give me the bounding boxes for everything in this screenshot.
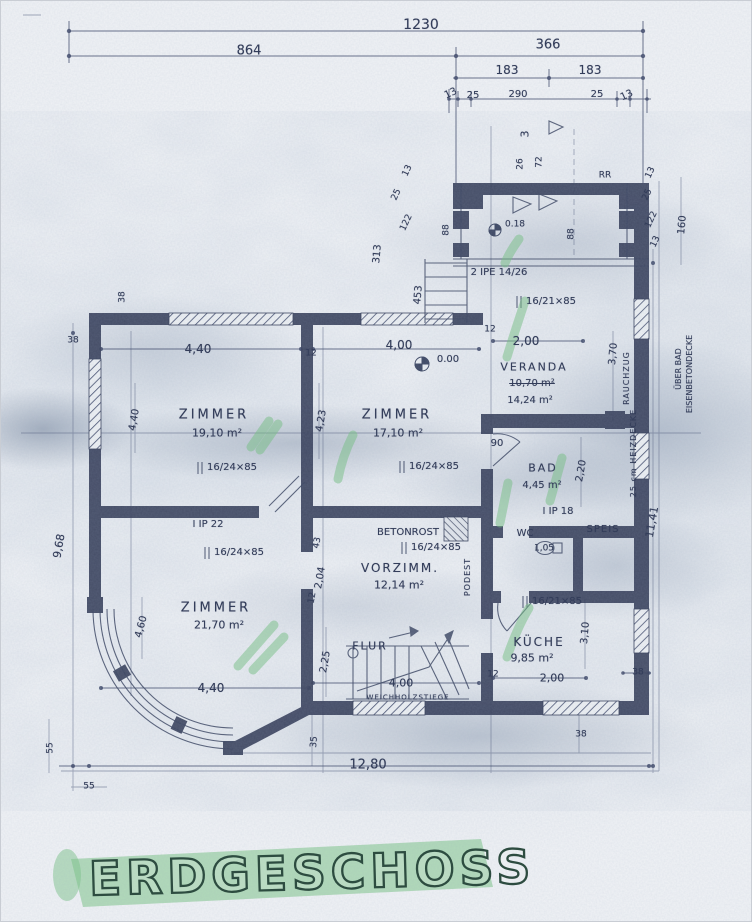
- dim-122-left: 122: [399, 213, 414, 232]
- window-zimmer-3: 16/24×85: [214, 548, 264, 558]
- note-rauchzug: RAUCHZUG: [623, 351, 631, 405]
- dim-90: 90: [491, 439, 504, 449]
- room-veranda: VERANDA: [500, 362, 567, 373]
- dim-968: 9,68: [51, 533, 66, 559]
- area-zimmer-3: 21,70 m²: [194, 620, 244, 631]
- note-rr: RR: [599, 172, 612, 181]
- dim-460: 4,60: [134, 615, 149, 639]
- room-zimmer-2: ZIMMER: [362, 409, 432, 422]
- dim-122-right: 122: [644, 210, 659, 229]
- area-zimmer-2: 17,10 m²: [373, 428, 423, 439]
- dim-25-porch-right: 25: [642, 188, 655, 202]
- room-kueche: KÜCHE: [513, 636, 564, 648]
- dim-88-right: 88: [568, 228, 577, 239]
- dim-200-kueche: 2,00: [540, 673, 565, 684]
- dim-35: 35: [310, 736, 320, 748]
- dim-12-mid: 12: [305, 350, 316, 359]
- note-betonrost: BETONROST: [377, 528, 439, 538]
- dim-55-vertical: 55: [47, 742, 56, 753]
- area-vorzimmer: 12,14 m²: [374, 580, 424, 591]
- window-vorzimmer: 16/24×85: [411, 543, 461, 553]
- window-zimmer-2: 16/24×85: [409, 462, 459, 472]
- note-ueber-bad: ÜBER BAD: [675, 348, 683, 390]
- window-kueche: 16/21×85: [532, 597, 582, 607]
- note-heizdecke: 25 cm HEIZDECKE: [630, 409, 638, 497]
- room-speis: SPEIS: [587, 525, 620, 535]
- dim-1280: 12,80: [349, 759, 386, 772]
- dim-12-flur: 12: [487, 671, 498, 680]
- note-stairs: WEICHHOLZSTIEGE: [366, 695, 449, 702]
- dim-38-bottom: 38: [575, 731, 586, 740]
- dim-72: 72: [536, 156, 545, 167]
- dim-453: 453: [413, 285, 425, 305]
- dim-43: 43: [313, 537, 324, 550]
- dim-313: 313: [372, 244, 384, 264]
- dim-38-top: 38: [119, 291, 128, 302]
- dim-440-left: 4,40: [128, 408, 142, 432]
- room-wc: WC: [517, 529, 534, 539]
- dim-13-porch-right: 13: [645, 166, 658, 180]
- dim-290: 290: [508, 90, 527, 100]
- dim-25-a: 25: [467, 91, 480, 101]
- dim-38-left: 38: [67, 337, 78, 346]
- dim-88-left: 88: [443, 224, 452, 235]
- dim-204: 2,04: [314, 566, 328, 590]
- dim-3: 3: [520, 131, 531, 138]
- dim-183-left: 183: [496, 64, 519, 76]
- area-kueche: 9,85 m²: [510, 653, 553, 664]
- dim-160: 160: [677, 215, 689, 235]
- beam-ip22: I IP 22: [192, 520, 223, 530]
- dim-26: 26: [517, 158, 526, 169]
- level-zero: 0.00: [437, 355, 459, 365]
- dim-225: 2,25: [319, 650, 333, 674]
- dim-200-veranda: 2,00: [513, 335, 540, 347]
- area-veranda: 14,24 m²: [507, 396, 553, 406]
- dim-12-vorzimmer: 12: [308, 592, 319, 605]
- dim-423: 4,23: [315, 409, 329, 433]
- note-eisenbetondecke: EISENBETONDECKE: [686, 335, 694, 413]
- dim-400-zimmer-2: 4,00: [386, 339, 413, 351]
- room-zimmer-3: ZIMMER: [181, 602, 251, 615]
- plan-labels: 12308643661831831325290251332672RR132512…: [1, 1, 751, 921]
- dim-13-porch-right-2: 13: [650, 235, 663, 249]
- dim-55-horizontal: 55: [83, 783, 94, 792]
- room-bad: BAD: [528, 463, 558, 474]
- dim-310: 3,10: [580, 621, 592, 644]
- beam-ip18: I IP 18: [542, 507, 573, 517]
- note-podest: PODEST: [464, 558, 472, 596]
- room-zimmer-1: ZIMMER: [179, 409, 249, 422]
- dim-12-veranda: 12: [484, 326, 495, 335]
- dim-370: 3,70: [608, 342, 620, 365]
- scanned-floor-plan-page: 12308643661831831325290251332672RR132512…: [0, 0, 752, 922]
- dim-440-zimmer-3: 4,40: [198, 682, 225, 694]
- dim-25-b: 25: [591, 90, 604, 100]
- dim-total-width: 1230: [403, 18, 439, 32]
- area-zimmer-1: 19,10 m²: [192, 428, 242, 439]
- dim-38-kueche: 38: [632, 669, 643, 678]
- dim-183-right: 183: [579, 64, 602, 76]
- level-porch: 0.18: [505, 221, 525, 230]
- beam-porch: 2 IPE 14/26: [471, 268, 528, 278]
- dim-366: 366: [536, 39, 561, 52]
- dim-13-b: 13: [619, 89, 635, 103]
- dim-13-a: 13: [443, 87, 459, 101]
- dim-13-porch-left: 13: [402, 164, 415, 178]
- dim-440-zimmer-1: 4,40: [185, 343, 212, 355]
- dim-400-flur: 4,00: [389, 678, 414, 689]
- dim-220: 2,20: [575, 459, 589, 483]
- dim-1141: 11,41: [644, 506, 660, 539]
- area-wc: 1,05: [534, 545, 554, 554]
- room-vorzimmer: VORZIMM.: [361, 562, 439, 574]
- window-zimmer-1: 16/24×85: [207, 463, 257, 473]
- dim-25-porch-left: 25: [391, 188, 404, 202]
- area-bad: 4,45 m²: [522, 481, 561, 491]
- dim-864: 864: [237, 45, 262, 58]
- window-veranda: 16/21×85: [526, 297, 576, 307]
- area-veranda-old: 10,70 m²: [509, 379, 555, 389]
- room-flur: FLUR: [352, 641, 388, 652]
